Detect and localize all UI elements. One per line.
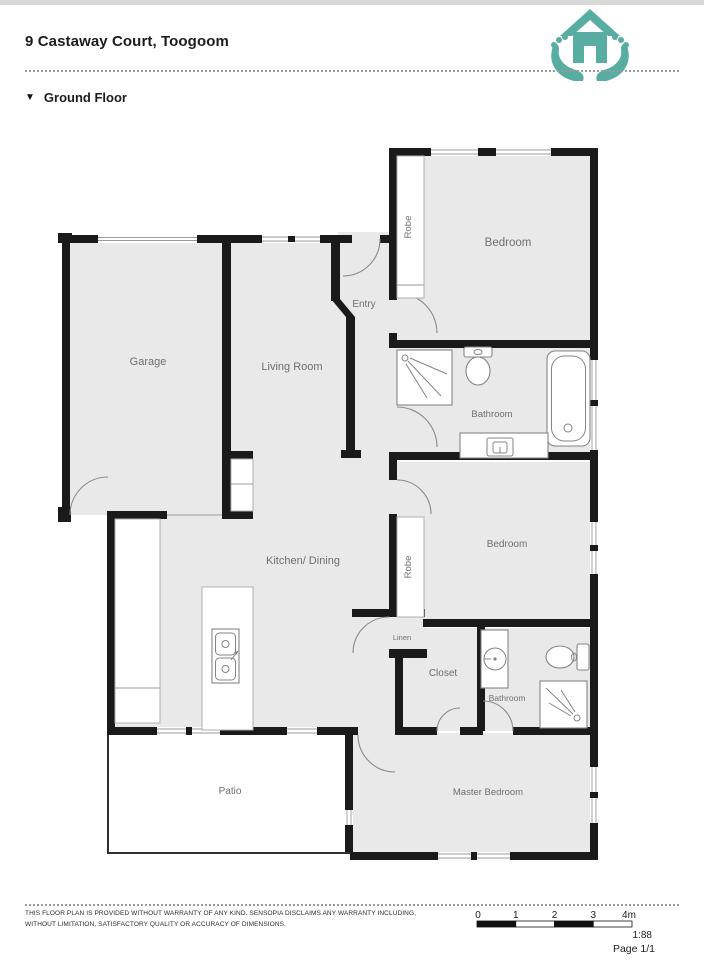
room-garage <box>66 239 226 515</box>
room-living <box>228 239 340 460</box>
robe-top-label: Robe <box>403 216 414 239</box>
scale-tick-1: 1 <box>513 910 519 921</box>
bedroom-middle-label: Bedroom <box>487 539 528 550</box>
master-bedroom-label: Master Bedroom <box>453 787 523 798</box>
bathroom-top-label: Bathroom <box>471 409 512 420</box>
scale-tick-0: 0 <box>475 910 481 921</box>
vanity-bottom-fixture <box>481 630 508 688</box>
vanity-top-fixture <box>460 433 548 458</box>
disclaimer-line-2: WITHOUT LIMITATION, SATISFACTORY QUALITY… <box>25 919 455 930</box>
closet-label: Closet <box>429 668 458 679</box>
kitchen-counter <box>115 519 160 723</box>
shower-top-fixture <box>397 350 452 405</box>
patio-label: Patio <box>219 786 242 797</box>
scale-ratio: 1:88 <box>633 930 653 941</box>
footer-divider <box>25 904 679 906</box>
room-closet <box>399 628 481 731</box>
disclaimer-line-1: THIS FLOOR PLAN IS PROVIDED WITHOUT WARR… <box>25 908 455 919</box>
pantry-cabinet <box>231 459 253 511</box>
room-kitchen-bridge <box>253 452 352 522</box>
scale-tick-2: 2 <box>552 910 558 921</box>
shower-bottom-fixture <box>540 681 587 728</box>
toilet-bottom-fixture <box>546 644 589 670</box>
scale-bar: 0 1 2 3 4m 1:88 Page 1/1 <box>475 910 655 955</box>
scale-tick-3: 3 <box>590 910 596 921</box>
living-room-label: Living Room <box>261 361 322 373</box>
bathtub-fixture <box>547 351 590 446</box>
kitchen-sink-fixture <box>212 629 239 683</box>
floor-plan-page: { "header": { "title": "9 Castaway Court… <box>0 0 704 964</box>
page-number: Page 1/1 <box>613 943 655 955</box>
robe-middle-label: Robe <box>403 556 414 579</box>
entry-label: Entry <box>352 299 375 310</box>
bedroom-top-label: Bedroom <box>485 237 532 249</box>
toilet-top-fixture <box>464 347 492 385</box>
scale-tick-4m: 4m <box>622 910 636 921</box>
floor-plan: Garage Living Room Entry Bedroom Robe Ba… <box>0 0 704 964</box>
linen-label: Linen <box>393 633 411 642</box>
disclaimer-text: THIS FLOOR PLAN IS PROVIDED WITHOUT WARR… <box>25 908 455 930</box>
kitchen-dining-label: Kitchen/ Dining <box>266 555 340 567</box>
garage-label: Garage <box>130 356 167 368</box>
bathroom-bottom-label: Bathroom <box>489 693 526 703</box>
